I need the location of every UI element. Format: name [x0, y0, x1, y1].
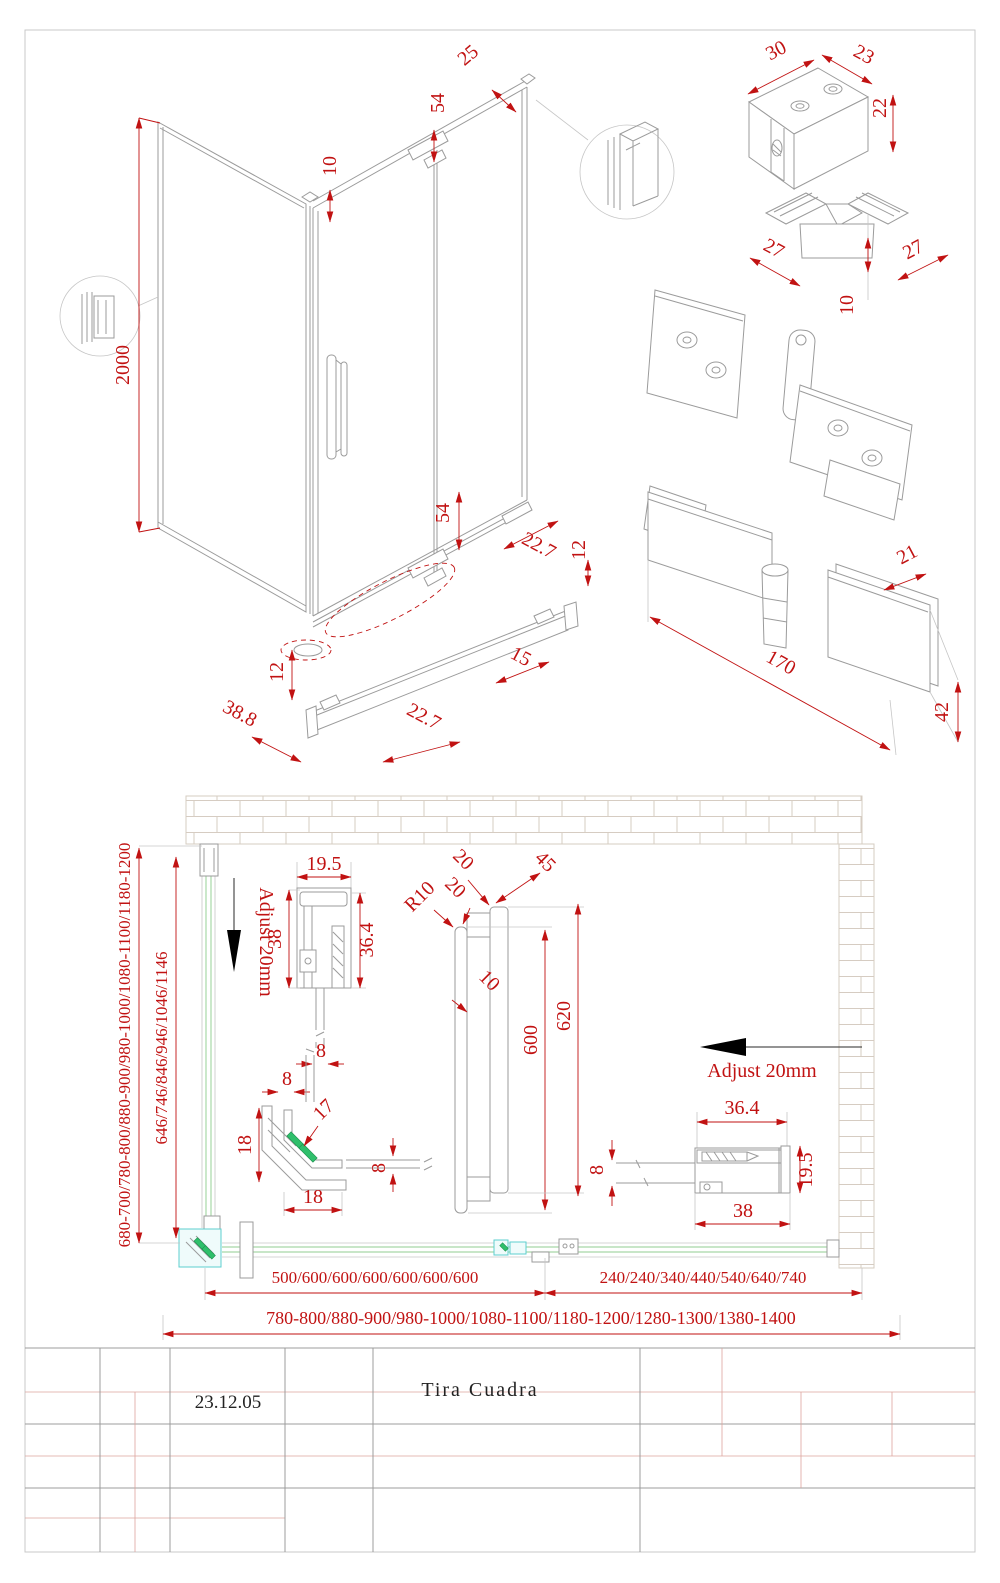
dim-handle-glass: 8	[586, 1165, 608, 1175]
dim-iso-edge-seal: 22.7	[518, 528, 559, 564]
dim-connector-arm-a: 27	[760, 234, 788, 263]
door-handle	[327, 355, 347, 459]
dim-rail-depth: 38.8	[219, 696, 260, 732]
dim-corner-side-a: 18	[234, 1135, 256, 1155]
cad-drawing: 2000 10 54 25 54 22.7 12 12 38.8 22.7 15	[0, 0, 1000, 1583]
right-wall-profile-detail: 36.4 19.5 38	[616, 1097, 817, 1230]
plan-bottom-dimensions: 500/600/600/600/600/600/600 240/240/340/…	[163, 1258, 900, 1340]
handle-detail: 20 20 45 R10 10 600 620 8	[400, 845, 612, 1213]
dim-handle-offset: 45	[530, 847, 560, 877]
adjust-annotation-right: Adjust 20mm	[700, 1038, 862, 1082]
dim-handle-tube-a: 20	[448, 845, 478, 875]
adjust-right-label: Adjust 20mm	[707, 1060, 817, 1082]
dim-rail-height: 12	[266, 662, 288, 682]
hardware-details: 30 23 22 27 27 10	[644, 36, 958, 755]
dim-connector-height: 10	[836, 295, 858, 315]
dim-plan-side-range: 680-700/780-800/880-900/980-1000/1080-11…	[115, 843, 134, 1248]
glass-hinge-detail	[647, 290, 912, 500]
plan-view: 680-700/780-800/880-900/980-1000/1080-11…	[115, 796, 900, 1340]
drawing-date: 23.12.05	[195, 1392, 262, 1413]
drawing-title: Tira Cuadra	[421, 1379, 538, 1401]
adjust-arrow-left	[700, 1038, 746, 1056]
enclosure-door-panel	[313, 74, 535, 627]
dim-iso-bottom-frame: 54	[432, 503, 454, 523]
dim-hinge-height: 42	[931, 702, 953, 722]
corner-connector-detail: 27 27 10	[750, 193, 948, 315]
dim-iso-top-frame: 54	[427, 93, 449, 113]
plan-wall-profile-top	[200, 844, 218, 876]
iso-dimensions: 2000 10 54 25 54 22.7 12 12 38.8 22.7 15	[112, 41, 590, 762]
dim-wall-profile-inner: 36.4	[356, 923, 378, 958]
dim-handle-total: 620	[553, 1001, 575, 1031]
dim-rail-seal: 22.7	[403, 699, 444, 735]
corner-block-detail: 30 23 22	[748, 36, 893, 189]
dim-iso-glass-gap: 10	[319, 156, 341, 176]
dim-hinge-plate-width: 21	[893, 540, 921, 569]
brick-wall-top	[186, 796, 862, 844]
dim-glass-a: 8	[316, 1040, 326, 1062]
dim-handle-radius: R10	[400, 877, 439, 916]
dim-corner-side-b: 18	[303, 1186, 323, 1208]
dim-block-width: 30	[762, 36, 790, 65]
drawing-page: 2000 10 54 25 54 22.7 12 12 38.8 22.7 15	[0, 0, 1000, 1583]
dim-wall-profile-depth: 38	[264, 929, 286, 949]
dim-plan-side-glass: 646/746/846/946/1046/1146	[152, 952, 171, 1145]
dim-iso-profile-width: 25	[453, 41, 482, 71]
dim-handle-tube-b: 20	[440, 873, 470, 903]
plan-left-dimensions: 680-700/780-800/880-900/980-1000/1080-11…	[115, 843, 202, 1248]
dim-panel-widths: 240/240/340/440/540/640/740	[600, 1268, 807, 1287]
dim-block-depth: 23	[850, 40, 878, 69]
brick-wall-right	[839, 844, 874, 1268]
dim-right-profile-width: 19.5	[795, 1153, 817, 1188]
dim-total-range: 780-800/880-900/980-1000/1080-1100/1180-…	[266, 1308, 796, 1328]
dim-right-profile-inner: 36.4	[725, 1097, 760, 1119]
title-block: 23.12.05 Tira Cuadra	[25, 1348, 975, 1552]
wall-hinge-detail: 21 170 42	[644, 460, 958, 755]
dim-handle-grip: 600	[520, 1025, 542, 1055]
detail-ellipse-threshold	[317, 550, 463, 649]
corner-profile-detail: 18 17 18 8	[234, 1049, 432, 1216]
detail-ellipse-foot	[281, 640, 331, 660]
dim-connector-arm-b: 27	[899, 235, 927, 264]
dim-glass-b: 8	[282, 1068, 292, 1090]
dim-corner-diagonal: 17	[309, 1095, 339, 1125]
dim-block-height: 22	[869, 98, 891, 118]
dim-right-profile-depth: 38	[733, 1200, 753, 1222]
dim-corner-glass: 8	[368, 1163, 390, 1173]
wall-profile-detail: 19.5 38 36.4 8 8	[262, 853, 378, 1092]
isometric-view: 2000 10 54 25 54 22.7 12 12 38.8 22.7 15	[60, 41, 674, 762]
enclosure-left-panel	[158, 122, 306, 612]
detail-circle-wall-profile	[60, 276, 158, 356]
dim-door-widths: 500/600/600/600/600/600/600	[272, 1268, 479, 1287]
dim-iso-height: 2000	[112, 345, 134, 385]
dim-iso-edge-height: 12	[568, 540, 590, 560]
dim-hinge-length: 170	[762, 646, 799, 680]
detail-circle-corner-profile	[536, 100, 674, 219]
adjust-arrow-down	[227, 930, 241, 972]
plan-wall-bracket-right	[827, 1240, 839, 1257]
dim-wall-profile-width: 19.5	[307, 853, 342, 875]
